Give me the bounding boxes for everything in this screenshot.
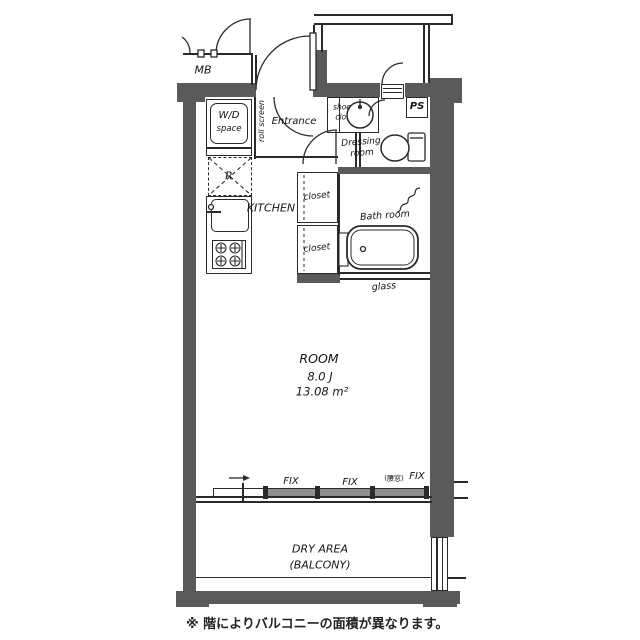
label-meter-box: MB [194,65,211,76]
label-roll-screen: roll screen [258,100,266,142]
label-wd-space-2: space [217,125,242,134]
label-refrigerator: R [225,171,233,182]
label-fix-center: FIX [342,478,358,488]
label-wd-space-1: W/D [219,111,240,121]
label-shoe-closet-2: clo. [335,113,348,121]
label-pipe-shaft: PS [410,102,425,112]
label-fix-right: FIX [409,472,425,482]
sink-faucet [206,205,221,213]
label-dry-area: DRY AREA [292,544,348,555]
label-fix-right-prefix: (腰窓) [384,476,403,483]
mb-door-swing [182,19,251,57]
label-room-size-m2: 13.08 m² [296,386,348,398]
entrance-door-swing [256,33,316,90]
label-fix-left: FIX [283,477,299,487]
service-door-swing [369,63,403,116]
label-entrance: Entrance [272,117,317,127]
label-balcony: (BALCONY) [289,560,350,571]
label-shoe-closet-1: shoe [333,103,351,111]
floorplan-canvas: MB W/D space roll screen Entrance shoe c… [0,0,640,640]
label-glass: glass [371,281,396,293]
stove-burners [216,241,242,268]
footnote-balcony-area: ※ 階によりバルコニーの面積が異なります。 [186,613,448,632]
label-room-name: ROOM [299,353,338,366]
window-open-arrow [229,475,250,481]
label-dressing-2: room [350,149,374,160]
bathtub [339,226,418,269]
toilet [381,133,425,161]
label-kitchen: KITCHEN [247,203,295,214]
label-room-size-tatami: 8.0 J [307,371,332,383]
